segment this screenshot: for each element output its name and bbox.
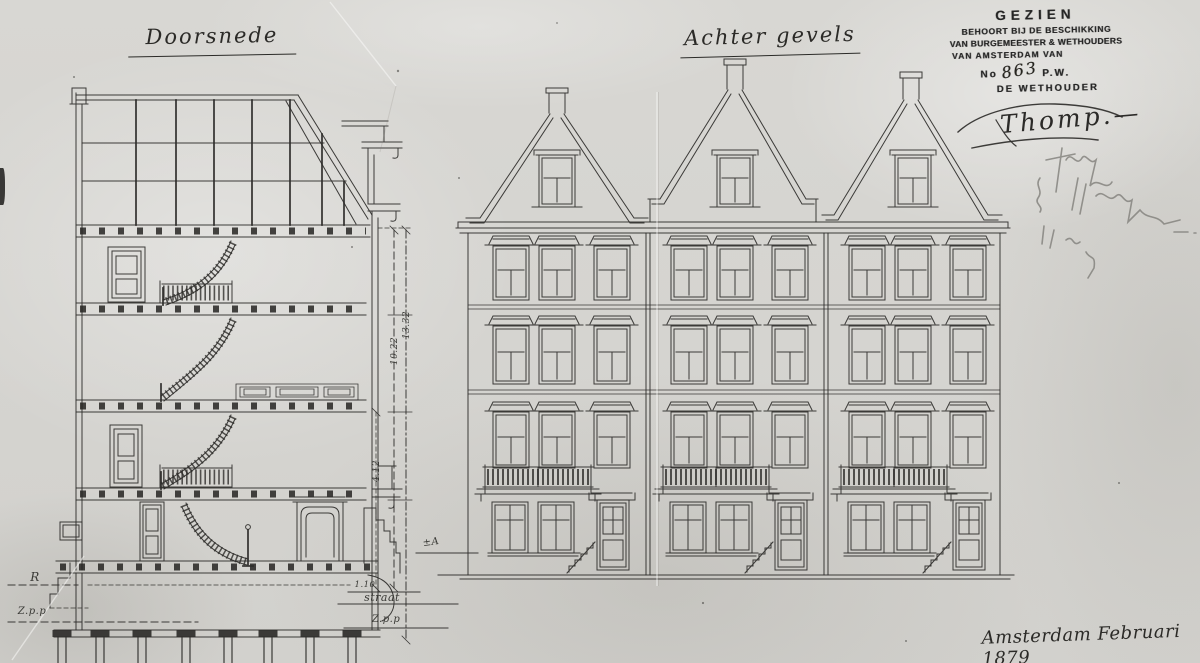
dimension-lines [8,226,478,644]
section-left-wall [70,88,88,570]
dim-label-height-inner: 10.22 [390,336,400,366]
panel-door-upper [108,247,145,302]
stamp-no-label: No [980,69,998,80]
drawing-sheet: Doorsnede Achter gevels GEZIEN BEHOORT B… [0,0,1200,663]
facade-ground-line [438,575,1014,579]
approval-stamp: GEZIEN BEHOORT BIJ DE BESCHIKKING VAN BU… [949,5,1151,96]
house-3 [831,150,994,573]
stamp-no-suffix: P.W. [1042,68,1070,80]
meander-panel [236,384,358,400]
right-stoop-steps [364,508,400,573]
datum-label-left-low: Z.p.p [12,606,52,617]
facade-cornice [456,222,1010,233]
section-floor-band-lines [56,225,378,573]
roof-house-2 [648,59,818,222]
scan-edge-artifact [0,168,5,205]
facades-title: Achter gevels [680,22,861,59]
dim-label-stoop: 1.10 [350,580,380,590]
panel-door-middle [110,425,142,487]
panel-door-ground [140,502,164,561]
stair-balusters [162,417,233,486]
datum-label-right: Z.p.p [366,614,406,625]
foundation-piles [58,637,356,663]
dim-label-height-lower: 4.12 [372,456,382,486]
pencil-scribble [1037,148,1196,278]
stamp-line-gezien: GEZIEN [995,5,1149,23]
section-attic-roof [76,95,372,224]
date-note: Amsterdam Februari 1879 [981,620,1200,663]
stair-balusters [164,243,233,302]
cellar-window [60,522,82,540]
stair-balusters [162,320,233,398]
street-label: straat [360,591,404,604]
house-1 [475,150,638,573]
rear-garden-door [293,497,347,561]
stamp-number-handwritten: 863 [1000,58,1039,83]
signature-flourish-text: .— [1101,98,1142,130]
dim-label-height-outer: 13.32 [402,310,412,340]
section-title: Doorsnede [128,23,297,58]
cross-section-drawing [50,88,402,663]
stair-balusters [184,505,247,562]
line-art [0,0,1200,663]
facades-drawing [438,59,1014,579]
stamp-number-line: No863P.W. [980,59,1150,82]
house-2 [653,150,816,573]
datum-label-left: R [20,570,50,584]
newel-finial [246,525,251,530]
